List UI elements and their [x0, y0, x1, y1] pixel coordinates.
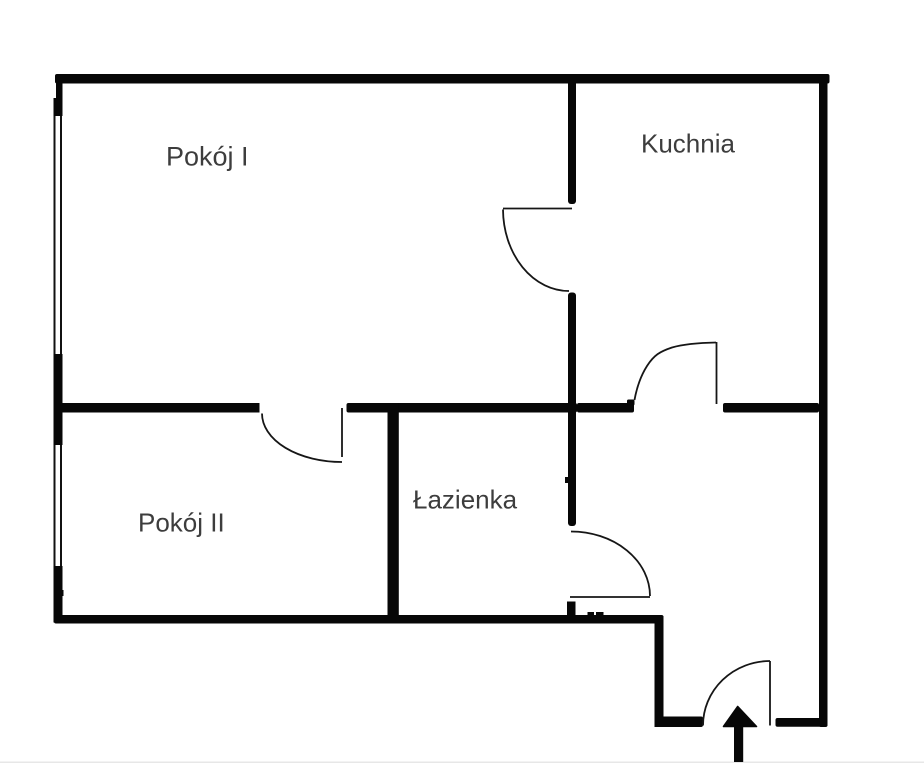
svg-text:Kuchnia: Kuchnia: [641, 129, 735, 159]
svg-text:Łazienka: Łazienka: [413, 485, 518, 515]
svg-text:Pokój II: Pokój II: [138, 508, 225, 538]
svg-text:Pokój I: Pokój I: [166, 142, 249, 172]
